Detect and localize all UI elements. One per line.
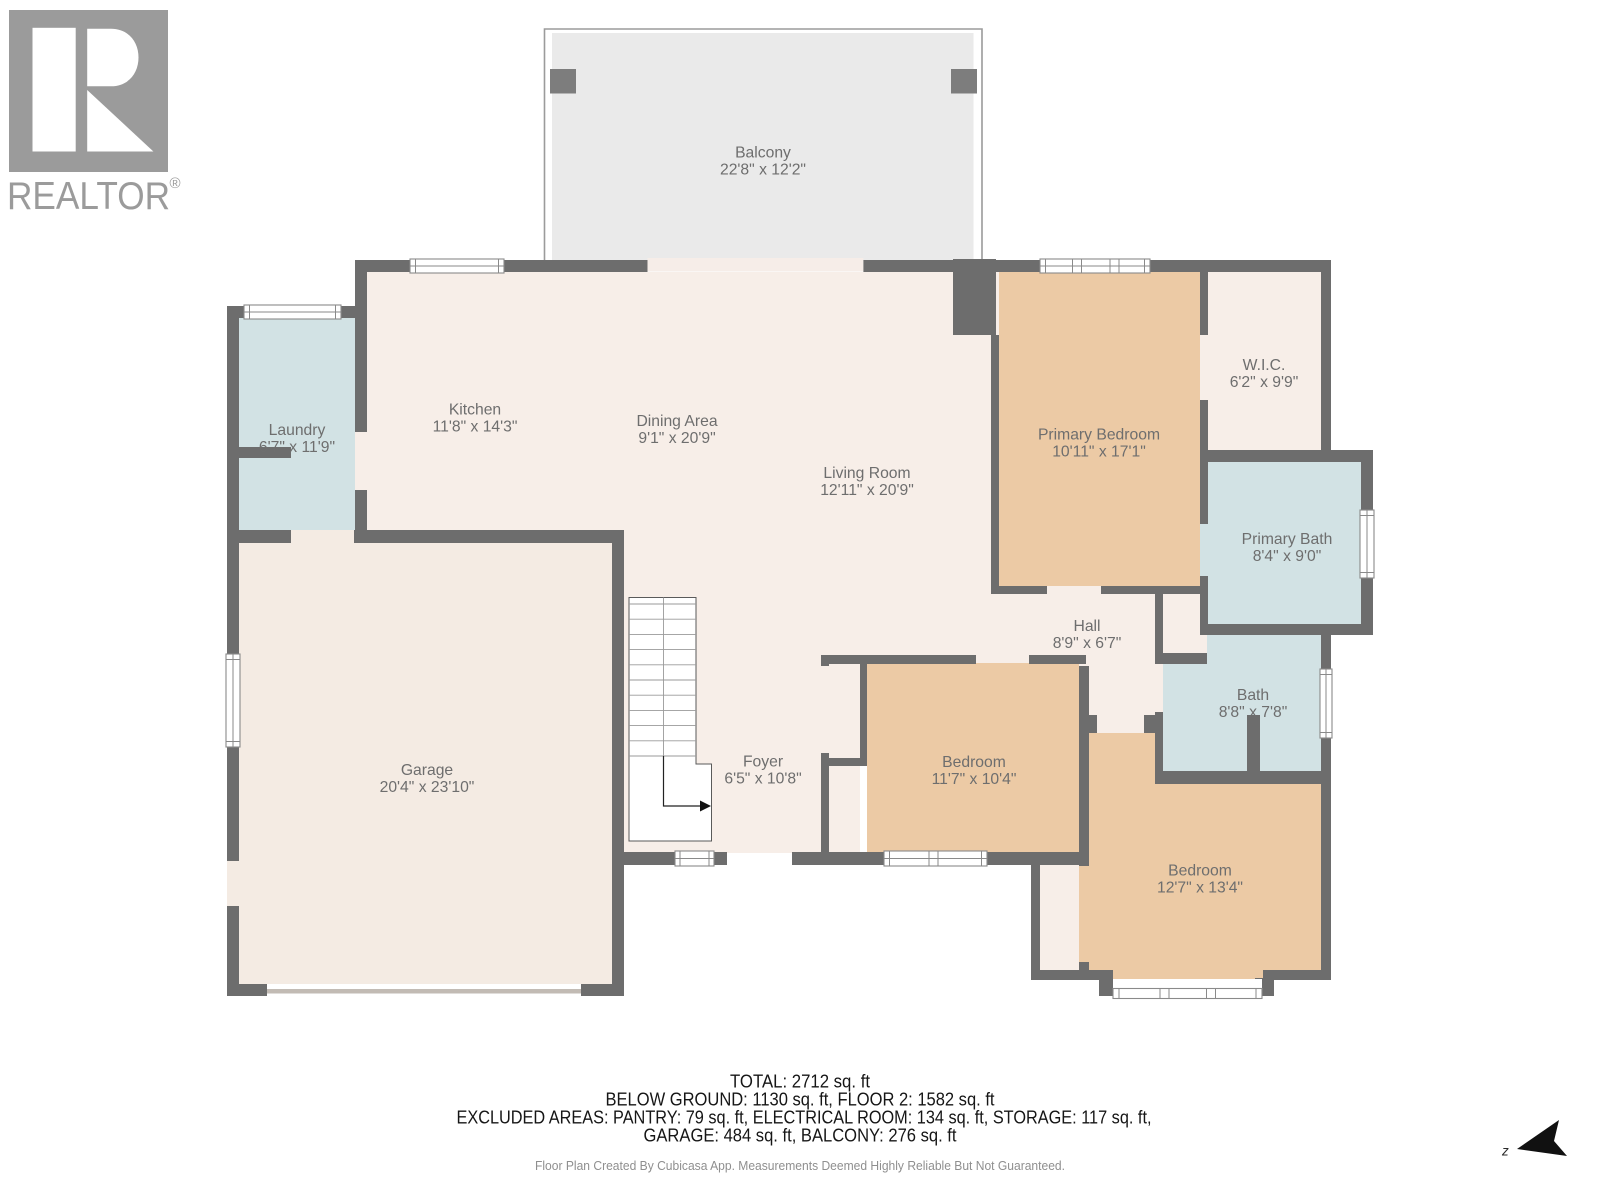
svg-text:Bath: Bath [1237, 687, 1269, 704]
svg-text:11'8" x 14'3": 11'8" x 14'3" [433, 419, 518, 436]
svg-text:Kitchen: Kitchen [449, 402, 501, 419]
svg-text:Garage: Garage [401, 762, 454, 779]
svg-text:Balcony: Balcony [735, 145, 791, 162]
svg-text:6'5" x 10'8": 6'5" x 10'8" [724, 771, 801, 788]
svg-text:Primary Bath: Primary Bath [1242, 531, 1333, 548]
svg-text:6'7" x 11'9": 6'7" x 11'9" [259, 439, 335, 456]
svg-text:20'4" x 23'10": 20'4" x 23'10" [380, 779, 475, 796]
svg-text:8'9" x 6'7": 8'9" x 6'7" [1053, 635, 1122, 652]
svg-text:Living Room: Living Room [823, 465, 910, 482]
svg-text:Laundry: Laundry [269, 422, 326, 439]
svg-text:Hall: Hall [1073, 618, 1100, 635]
svg-text:11'7" x 10'4": 11'7" x 10'4" [932, 771, 1017, 788]
svg-text:z: z [1501, 1144, 1509, 1159]
svg-text:10'11" x 17'1": 10'11" x 17'1" [1052, 444, 1146, 461]
svg-text:Floor Plan Created By Cubicasa: Floor Plan Created By Cubicasa App. Meas… [535, 1158, 1065, 1173]
svg-text:Primary Bedroom: Primary Bedroom [1038, 427, 1160, 444]
svg-text:8'8" x 7'8": 8'8" x 7'8" [1219, 704, 1288, 721]
svg-text:12'7" x 13'4": 12'7" x 13'4" [1157, 880, 1243, 897]
svg-text:6'2" x 9'9": 6'2" x 9'9" [1230, 374, 1299, 391]
svg-text:Foyer: Foyer [743, 754, 783, 771]
svg-text:8'4" x 9'0": 8'4" x 9'0" [1253, 548, 1322, 565]
svg-text:Bedroom: Bedroom [1168, 863, 1232, 880]
svg-text:Bedroom: Bedroom [942, 754, 1006, 771]
svg-text:22'8" x 12'2": 22'8" x 12'2" [720, 162, 806, 179]
svg-text:W.I.C.: W.I.C. [1243, 357, 1286, 374]
svg-text:®: ® [170, 175, 181, 192]
svg-text:12'11" x 20'9": 12'11" x 20'9" [820, 482, 914, 499]
svg-text:9'1" x 20'9": 9'1" x 20'9" [638, 430, 715, 447]
svg-text:Dining Area: Dining Area [636, 413, 717, 430]
svg-text:REALTOR: REALTOR [7, 175, 170, 218]
svg-text:GARAGE: 484 sq. ft, BALCONY: 2: GARAGE: 484 sq. ft, BALCONY: 276 sq. ft [644, 1124, 958, 1145]
